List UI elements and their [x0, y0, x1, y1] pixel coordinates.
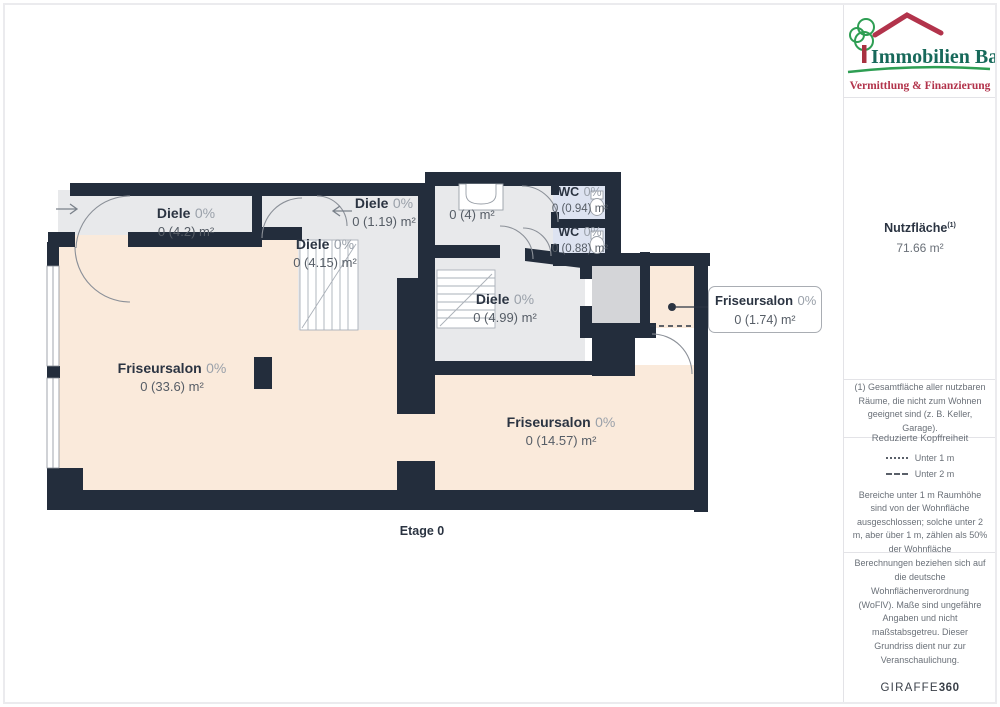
- headroom-note: Bereiche unter 1 m Raumhöhe sind von der…: [852, 489, 988, 557]
- room-label-diele-4: Diele 0% 0 (4.99) m²: [473, 290, 537, 326]
- agency-logo-graphic: Immobilien Bart Vermittlung & Finanzieru…: [845, 5, 995, 97]
- dotted-line-icon: [886, 457, 908, 459]
- logo-underline: [848, 67, 990, 72]
- headroom-title: Reduzierte Kopffreiheit: [872, 433, 968, 444]
- tree-trunk: [862, 45, 867, 63]
- room-label-unnamed: 0 (4) m²: [449, 207, 495, 223]
- roof-icon: [875, 15, 941, 35]
- agency-name: Immobilien Bart: [871, 46, 995, 68]
- floorplan-page: Diele 0% 0 (4.2) m² Diele 0% 0 (1.19) m²…: [0, 0, 1000, 707]
- room-label-diele-1: Diele 0% 0 (4.2) m²: [157, 204, 215, 240]
- dashed-line-icon: [886, 473, 908, 475]
- disclaimer: Berechnungen beziehen sich auf die deuts…: [844, 552, 996, 702]
- giraffe360-logo: GIRAFFE360: [881, 680, 960, 698]
- room-label-wc-2: WC 0% 0 (0.88) m²: [552, 222, 608, 256]
- room-label-diele-3: Diele 0% 0 (4.15) m²: [293, 235, 357, 271]
- footnote: (1) Gesamtfläche aller nutzbaren Räume, …: [844, 379, 996, 437]
- area-summary-label: Nutzfläche(1): [884, 221, 956, 235]
- sidebar: Immobilien Bart Vermittlung & Finanzieru…: [843, 5, 996, 702]
- window-left-lower: [47, 378, 59, 468]
- footnote-marker: (1): [947, 222, 956, 229]
- agency-logo: Immobilien Bart Vermittlung & Finanzieru…: [844, 5, 996, 97]
- legend-under-1m: Unter 1 m: [886, 453, 955, 463]
- room-label-friseursalon-1: Friseursalon 0% 0 (33.6) m²: [118, 359, 227, 395]
- agency-tagline: Vermittlung & Finanzierung: [850, 80, 991, 92]
- floor-plan: [0, 0, 840, 707]
- legend-under-2m: Unter 2 m: [886, 469, 955, 479]
- floor-label: Etage 0: [400, 524, 444, 538]
- room-label-wc-1: WC 0% 0 (0.94) m²: [552, 182, 608, 216]
- room-callout-friseursalon-3: Friseursalon 0% 0 (1.74) m²: [708, 286, 822, 333]
- headroom-legend: Reduzierte Kopffreiheit Unter 1 m Unter …: [844, 437, 996, 552]
- window-left-upper: [47, 266, 59, 366]
- area-summary: Nutzfläche(1) 71.66 m²: [844, 97, 996, 379]
- room-label-diele-2: Diele 0% 0 (1.19) m²: [352, 194, 416, 230]
- room-label-friseursalon-2: Friseursalon 0% 0 (14.57) m²: [507, 413, 616, 449]
- area-summary-value: 71.66 m²: [896, 241, 943, 255]
- column: [254, 357, 272, 389]
